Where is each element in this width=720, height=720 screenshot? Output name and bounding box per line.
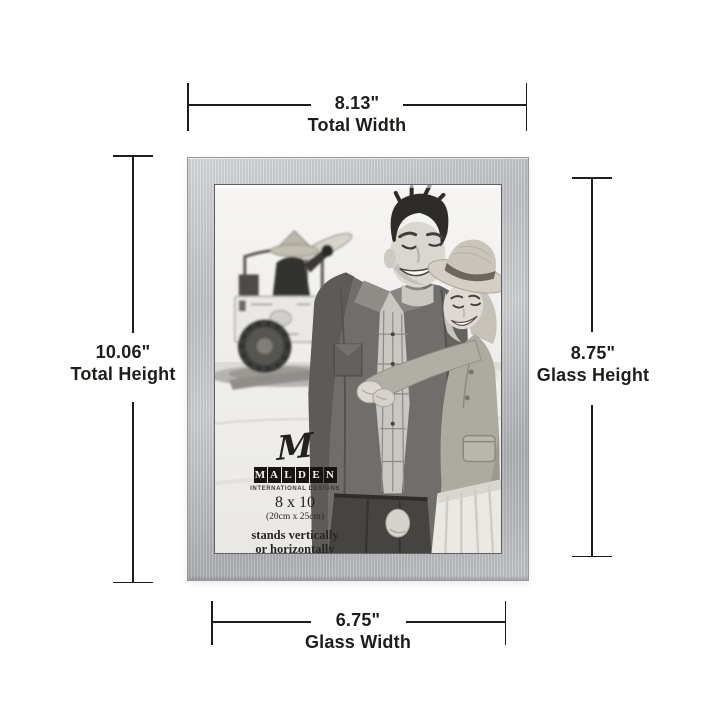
brand-tile: A [268, 467, 281, 483]
size-label: 8 x 10 [215, 495, 375, 511]
orientation-text-1: stands vertically [215, 528, 375, 542]
dimension-line [591, 177, 593, 332]
dimension-text: 10.06" Total Height [70, 342, 175, 386]
dimension-tick [187, 83, 189, 131]
dimension-text: 8.75" Glass Height [537, 343, 649, 387]
glass-height-label: Glass Height [537, 365, 649, 387]
dimension-total-height: 10.06" Total Height [70, 155, 196, 583]
dimension-text: 6.75" Glass Width [305, 610, 411, 654]
dimension-glass-height: 8.75" Glass Height [546, 177, 672, 557]
total-height-value: 10.06" [70, 342, 175, 364]
dimension-tick [505, 601, 507, 645]
malden-brand: M A L D E N [215, 467, 375, 483]
product-dimension-diagram: 8.13" Total Width 6.75" Glass Width 10.0… [0, 0, 720, 720]
dimension-text: 8.13" Total Width [308, 93, 407, 137]
dimension-line [211, 621, 311, 623]
dimension-line [403, 104, 527, 106]
dimension-total-width: 8.13" Total Width [187, 83, 527, 131]
dimension-line [591, 405, 593, 557]
glass-height-value: 8.75" [537, 343, 649, 365]
picture-frame: M M A L D E N INTERNATIONAL DESIGNS 8 x … [187, 157, 529, 581]
total-height-label: Total Height [70, 364, 175, 386]
frame-glass: M M A L D E N INTERNATIONAL DESIGNS 8 x … [214, 184, 502, 554]
brand-tile: D [296, 467, 309, 483]
dimension-glass-width: 6.75" Glass Width [211, 601, 506, 645]
orientation-text-2: or horizontally [215, 542, 375, 554]
dimension-line [132, 402, 134, 583]
dimension-line [187, 104, 311, 106]
dimension-line [406, 621, 506, 623]
size-metric-label: (20cm x 25cm) [215, 513, 375, 523]
total-width-label: Total Width [308, 115, 407, 137]
brand-tile: N [324, 467, 337, 483]
total-width-value: 8.13" [308, 93, 407, 115]
dimension-tick [526, 83, 528, 131]
brand-tile: E [310, 467, 323, 483]
dimension-line [132, 155, 134, 333]
brand-tile: L [282, 467, 295, 483]
glass-width-label: Glass Width [305, 632, 411, 654]
dimension-tick [211, 601, 213, 645]
brand-tagline: INTERNATIONAL DESIGNS [215, 486, 375, 492]
malden-label: M M A L D E N INTERNATIONAL DESIGNS 8 x … [215, 433, 375, 554]
glass-width-value: 6.75" [305, 610, 411, 632]
brand-tile: M [254, 467, 267, 483]
